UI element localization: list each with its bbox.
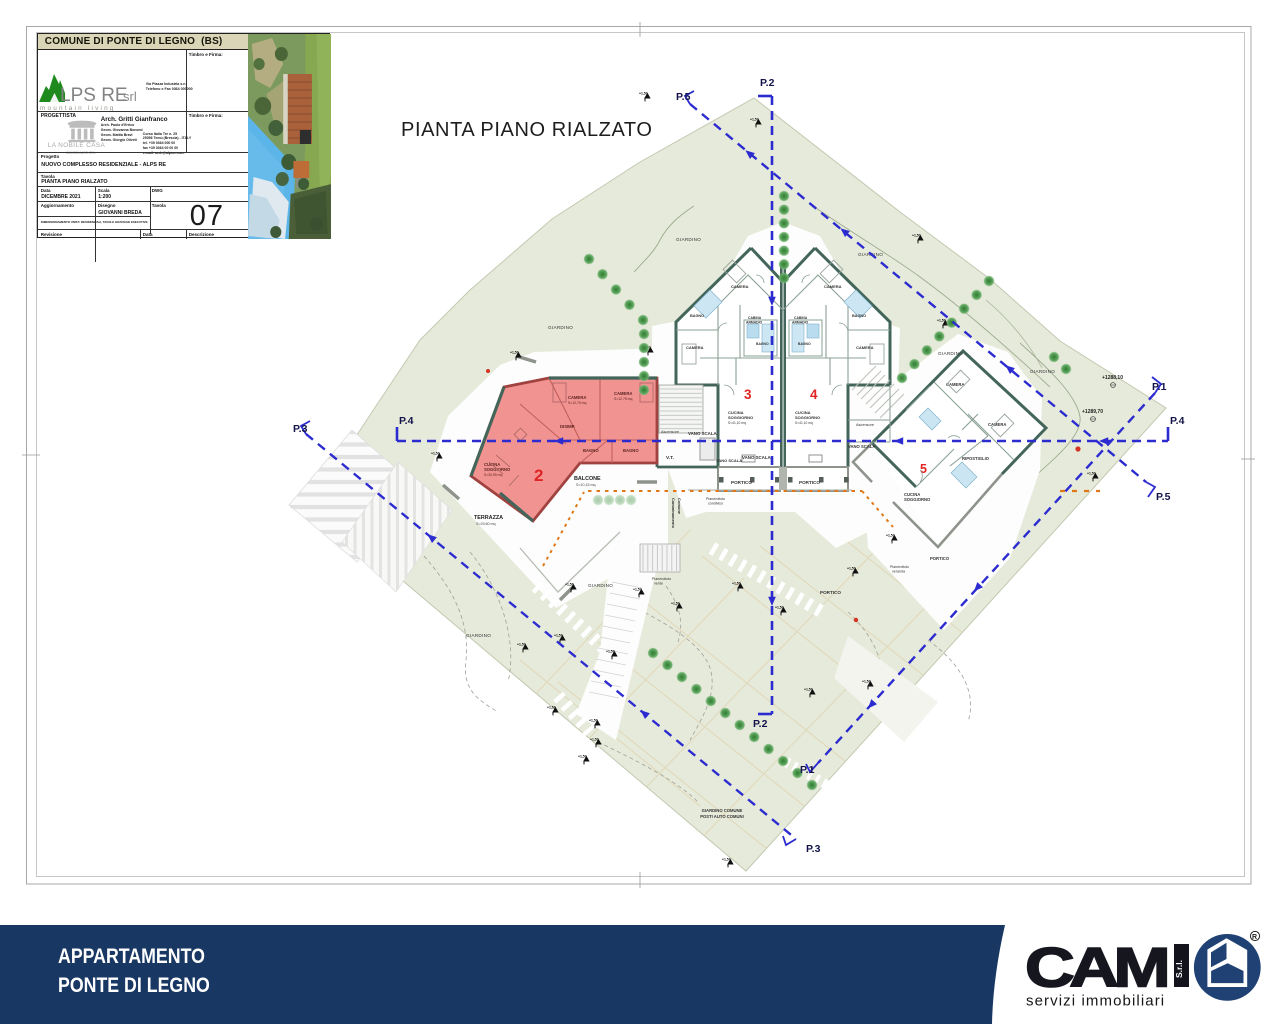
svg-text:SOGGIORNO: SOGGIORNO: [904, 497, 931, 502]
svg-text:GIARDINO: GIARDINO: [548, 325, 573, 330]
svg-text:BAGNO: BAGNO: [756, 342, 769, 346]
svg-text:P.4: P.4: [1170, 415, 1185, 427]
svg-text:S=41,10 mq: S=41,10 mq: [728, 421, 746, 425]
svg-text:CAMERA: CAMERA: [988, 422, 1006, 427]
svg-text:P.5: P.5: [676, 91, 691, 103]
svg-text:P.1: P.1: [800, 764, 815, 776]
svg-text:SOGGIORNO: SOGGIORNO: [728, 415, 753, 420]
svg-text:BAGNO: BAGNO: [852, 314, 866, 318]
svg-text:P.1: P.1: [1152, 381, 1167, 393]
svg-text:4: 4: [810, 387, 818, 402]
svg-text:P.3: P.3: [293, 423, 308, 435]
svg-text:S=12,75 mq: S=12,75 mq: [568, 401, 586, 405]
svg-text:GIARDINO COMUNE: GIARDINO COMUNE: [702, 808, 743, 813]
svg-text:VANO SCALA: VANO SCALA: [716, 458, 742, 463]
svg-text:+1288,10: +1288,10: [1102, 375, 1123, 381]
svg-text:VANO SCALA: VANO SCALA: [848, 444, 875, 449]
svg-text:PORTICO: PORTICO: [930, 556, 950, 561]
svg-text:veranda: veranda: [892, 570, 905, 574]
svg-text:V.T.: V.T.: [666, 455, 674, 461]
svg-text:BAGNO: BAGNO: [690, 314, 704, 318]
svg-text:S=29,60 mq: S=29,60 mq: [476, 522, 495, 526]
svg-text:CAMERA: CAMERA: [686, 345, 704, 350]
svg-text:BAGNO: BAGNO: [623, 448, 639, 453]
svg-text:S=10,15 mq: S=10,15 mq: [576, 483, 595, 487]
svg-text:+1289,70: +1289,70: [1082, 409, 1103, 415]
svg-text:Comune: Comune: [677, 498, 682, 515]
svg-text:S=41,10 mq: S=41,10 mq: [795, 421, 813, 425]
svg-text:2: 2: [534, 466, 543, 485]
svg-text:ARMADIO: ARMADIO: [746, 321, 763, 325]
svg-text:ARMADIO: ARMADIO: [792, 321, 809, 325]
svg-text:VANO SCALA: VANO SCALA: [688, 431, 718, 436]
svg-text:Pianerottolo: Pianerottolo: [652, 577, 671, 581]
svg-text:GIARDINO: GIARDINO: [938, 351, 963, 356]
svg-text:CAMERA: CAMERA: [731, 284, 749, 289]
svg-text:Pianerottolo: Pianerottolo: [890, 565, 909, 569]
svg-text:VANO SCALA: VANO SCALA: [742, 455, 772, 460]
svg-text:POSTI AUTO COMUNI: POSTI AUTO COMUNI: [700, 814, 744, 819]
svg-text:P.3: P.3: [806, 843, 821, 855]
svg-text:PORTICO: PORTICO: [799, 480, 820, 485]
svg-text:verde: verde: [654, 582, 663, 586]
svg-text:CAMERA: CAMERA: [614, 391, 632, 396]
svg-text:condiviso: condiviso: [708, 502, 723, 506]
svg-text:CAMERA: CAMERA: [946, 382, 964, 387]
svg-text:Camminamento: Camminamento: [671, 498, 676, 529]
svg-text:LA NOBILE CASA: LA NOBILE CASA: [48, 142, 106, 149]
svg-text:3: 3: [744, 387, 752, 402]
svg-text:PORTICO: PORTICO: [820, 590, 841, 595]
svg-text:GIARDINO: GIARDINO: [466, 633, 491, 638]
svg-text:P.2: P.2: [753, 718, 768, 730]
svg-text:S.r.l.: S.r.l.: [1174, 960, 1184, 978]
svg-text:GIARDINO: GIARDINO: [588, 583, 613, 588]
svg-text:BALCONE: BALCONE: [574, 476, 601, 482]
svg-text:5: 5: [920, 462, 927, 476]
svg-text:P.4: P.4: [399, 415, 414, 427]
svg-text:BAGNO: BAGNO: [798, 342, 811, 346]
svg-text:Ascensore: Ascensore: [661, 430, 679, 434]
svg-text:Ascensore: Ascensore: [856, 423, 874, 427]
svg-text:BAGNO: BAGNO: [583, 448, 599, 453]
svg-text:LPS RE: LPS RE: [60, 85, 128, 106]
svg-text:TERRAZZA: TERRAZZA: [474, 515, 503, 521]
svg-text:GIARDINO: GIARDINO: [1030, 369, 1055, 374]
svg-text:CABINA: CABINA: [748, 316, 762, 320]
svg-text:Pianerottolo: Pianerottolo: [706, 497, 725, 501]
svg-text:R: R: [1252, 934, 1257, 941]
svg-text:S=12,75 mq: S=12,75 mq: [614, 397, 632, 401]
svg-text:P.5: P.5: [1156, 491, 1171, 503]
svg-text:srl: srl: [123, 89, 137, 104]
svg-text:GIARDINO: GIARDINO: [676, 237, 701, 242]
svg-text:S=30,95 mq: S=30,95 mq: [484, 473, 502, 477]
svg-text:servizi immobiliari: servizi immobiliari: [1026, 993, 1165, 1010]
svg-text:RIPOSTIGLIO: RIPOSTIGLIO: [962, 456, 990, 461]
svg-text:PORTICO: PORTICO: [731, 480, 752, 485]
svg-text:P.2: P.2: [760, 77, 775, 89]
svg-text:CABINA: CABINA: [794, 316, 808, 320]
svg-text:CAMERA: CAMERA: [568, 395, 586, 400]
svg-text:DISIMP.: DISIMP.: [560, 424, 575, 429]
svg-text:CAM: CAM: [1025, 937, 1167, 999]
svg-text:CAMERA: CAMERA: [856, 345, 874, 350]
svg-text:SOGGIORNO: SOGGIORNO: [795, 415, 820, 420]
svg-text:CAMERA: CAMERA: [824, 284, 842, 289]
